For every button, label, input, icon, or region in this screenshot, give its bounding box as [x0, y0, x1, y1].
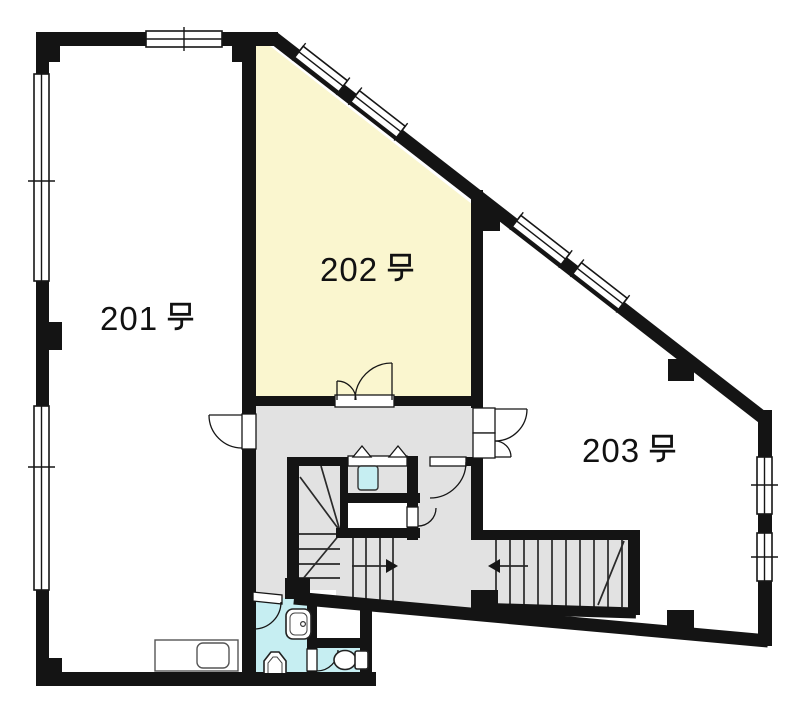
gou-glyph [650, 436, 675, 461]
room-202-label: 202 [320, 251, 378, 288]
left-lower-window [28, 406, 55, 590]
gou-glyph [168, 304, 193, 329]
storage-floor [348, 503, 407, 528]
pillar-203-diagonal [668, 359, 694, 381]
room-201-label: 201 [100, 300, 158, 337]
pillar-202-corner [477, 207, 500, 231]
wc-basin [358, 466, 378, 490]
toilet-2 [334, 651, 368, 670]
core-pillar [285, 578, 310, 599]
bathroom-sink [286, 609, 311, 639]
diagonal-window-3 [510, 212, 572, 267]
vestibule-pillar [471, 590, 498, 613]
pillar-203-bottom [667, 610, 694, 631]
floor-fills [254, 46, 634, 673]
floor-plan: 201 202 203 [0, 0, 800, 702]
mid-stair-floor [336, 538, 418, 606]
right-upper-window [751, 457, 778, 514]
top-window [146, 27, 222, 51]
diagonal-window-4 [570, 260, 629, 313]
floor-plan-drawing: 201 202 203 [0, 0, 800, 702]
left-wall-pillar [48, 322, 62, 350]
room-201-door [209, 414, 256, 449]
left-upper-window [28, 74, 55, 281]
room-203-label: 203 [582, 432, 640, 469]
room-203-double-door [473, 408, 527, 458]
side-stair-floor [483, 536, 634, 614]
right-lower-window [751, 533, 778, 581]
right-wall [758, 410, 772, 646]
kitchen-counter [155, 640, 238, 671]
